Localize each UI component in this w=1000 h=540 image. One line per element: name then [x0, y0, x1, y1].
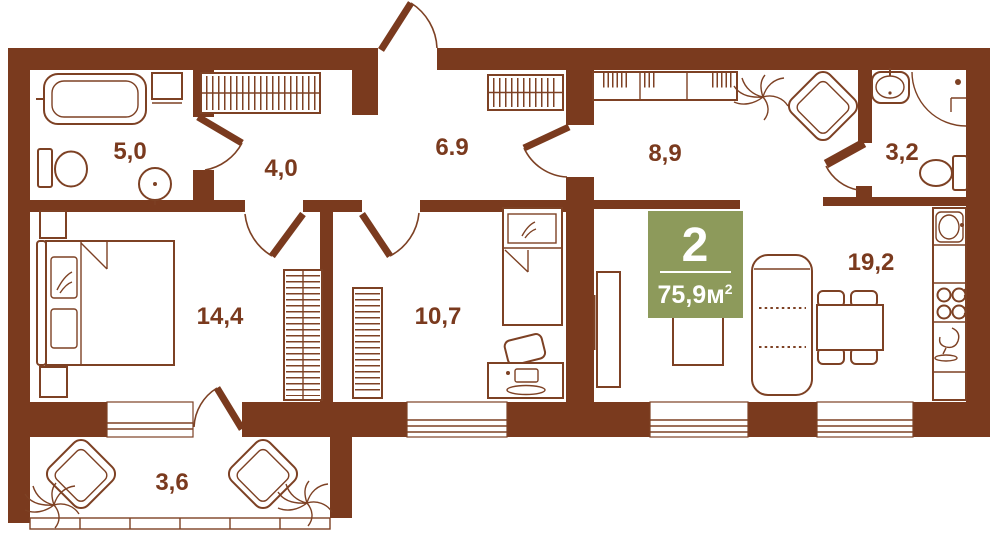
room-label-kids: 10,7	[415, 303, 462, 330]
bedroom-door	[245, 214, 303, 256]
kitchen-counter-icon	[933, 208, 966, 400]
hallway-wardrobe-icon	[201, 73, 320, 113]
tv-stand-icon	[673, 315, 723, 365]
sofa-icon	[752, 255, 812, 395]
floor-plan: 5,0 4,0 6.9 8,9 3,2 14,4 10,7 19,2 3,6 2…	[0, 0, 1000, 540]
badge-room-count: 2	[682, 219, 709, 272]
toilet-icon	[38, 149, 87, 187]
balcony-chair-icon	[43, 436, 119, 512]
bathroom-sink-icon	[139, 168, 171, 205]
wc-sink-icon	[872, 68, 909, 103]
room-label-bathroom: 5,0	[113, 138, 146, 165]
window-balcony-bedroom	[107, 402, 193, 437]
badge-area: 75,9м2	[658, 281, 733, 309]
balcony-glazing	[30, 518, 330, 529]
room-label-bedroom: 14,4	[197, 303, 244, 330]
window-kids-room	[407, 402, 507, 437]
window-living-right	[817, 402, 913, 437]
nightstand-icon	[40, 211, 66, 238]
room-label-balcony: 3,6	[155, 469, 188, 496]
bathroom-door	[198, 117, 242, 170]
bedroom-wardrobe-icon	[284, 270, 322, 400]
wc-toilet-icon	[920, 156, 967, 190]
area-badge: 2 75,9м2	[648, 211, 743, 318]
bathtub-icon	[36, 74, 146, 124]
wc-door	[826, 143, 864, 190]
double-bed-icon	[37, 241, 174, 365]
dining-table-icon	[817, 305, 883, 350]
entry-wardrobe-icon	[488, 75, 563, 110]
wc-dot	[955, 79, 961, 85]
hall-closet-icon	[593, 72, 737, 100]
kids-room-door	[362, 213, 419, 256]
window-living-left	[650, 402, 748, 437]
desk-chair-icon	[503, 333, 546, 366]
plant-icon	[734, 75, 788, 120]
nightstand-icon	[40, 367, 67, 397]
room-label-living: 19,2	[848, 249, 895, 276]
washing-machine-icon	[152, 73, 182, 103]
single-bed-icon	[503, 208, 562, 325]
desk-icon	[488, 363, 563, 398]
tv-unit-icon	[595, 272, 621, 387]
floor-plan-page: 5,0 4,0 6.9 8,9 3,2 14,4 10,7 19,2 3,6 2…	[0, 0, 1000, 540]
room-label-wc: 3,2	[885, 139, 918, 166]
room-label-entry: 6.9	[435, 134, 468, 161]
balcony-door	[194, 388, 242, 429]
armchair-icon	[785, 68, 861, 144]
room-label-hall: 8,9	[648, 140, 681, 167]
room-label-hallway: 4,0	[264, 155, 297, 182]
living-room-door	[524, 127, 569, 177]
kids-wardrobe-icon	[353, 288, 382, 398]
entrance-door	[381, 3, 437, 50]
